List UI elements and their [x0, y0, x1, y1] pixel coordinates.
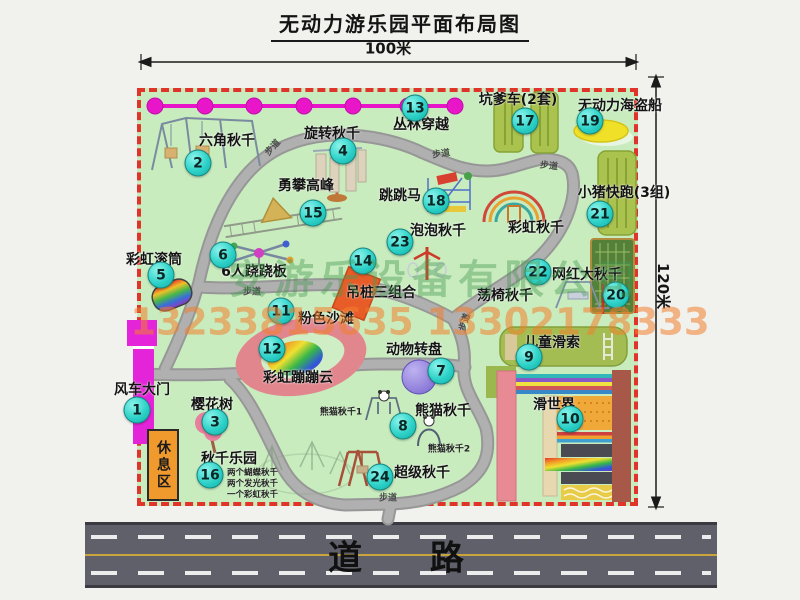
attraction-18-label: 跳跳马	[379, 185, 421, 205]
rainbow-swing-label: 彩虹秋千	[508, 217, 564, 237]
attraction-15-label: 勇攀高峰	[278, 175, 334, 195]
attraction-23-label: 泡泡秋千	[410, 220, 466, 240]
attraction-16-bubble: 16	[197, 462, 224, 489]
attraction-15-bubble: 15	[300, 200, 327, 227]
attraction-2-bubble: 2	[185, 150, 212, 177]
swing-note-2: 两个发光秋千	[227, 479, 278, 489]
attraction-2-label: 六角秋千	[199, 130, 255, 150]
attraction-10-bubble: 10	[557, 406, 584, 433]
width-dimension-label: 100米	[365, 38, 411, 59]
playground-map-page: 无动力游乐园平面布局图 100米 120米	[0, 0, 800, 600]
attraction-1-label: 风车大门	[114, 379, 170, 399]
attraction-3-bubble: 3	[202, 409, 229, 436]
attraction-8-label: 熊猫秋千	[415, 400, 471, 420]
attraction-7-bubble: 7	[428, 358, 455, 385]
attraction-8-bubble: 8	[390, 413, 417, 440]
swing-note-3: 一个彩虹秋千	[227, 490, 278, 500]
attraction-9-bubble: 9	[516, 344, 543, 371]
attraction-17-label: 坑爹车(2套)	[479, 89, 558, 109]
attraction-5-bubble: 5	[148, 262, 175, 289]
attraction-21-label: 小猪快跑(3组)	[578, 182, 671, 202]
attraction-1-bubble: 1	[124, 397, 151, 424]
street-label: 道 路	[328, 531, 474, 580]
attraction-12-label: 彩虹蹦蹦云	[263, 367, 333, 387]
swing-note-1: 两个蝴蝶秋千	[227, 468, 278, 478]
attraction-24-label: 超级秋千	[394, 462, 450, 482]
rest-area-box: 休息区	[147, 429, 179, 501]
attraction-24-bubble: 24	[367, 464, 394, 491]
attraction-4-bubble: 4	[330, 138, 357, 165]
watermark-phone: 13233815635 13302178333	[130, 301, 709, 344]
attraction-18-bubble: 18	[423, 188, 450, 215]
attraction-21-bubble: 21	[587, 201, 614, 228]
path-label: 步道	[539, 158, 558, 173]
attraction-19-bubble: 19	[577, 108, 604, 135]
watermark-company: 安游乐设备有限公司	[228, 247, 642, 305]
panda-swing-1-note: 熊猫秋千1	[320, 405, 362, 418]
street-strip: 道 路	[85, 522, 717, 588]
path-label: 步道	[431, 145, 451, 160]
attraction-13-bubble: 13	[402, 95, 429, 122]
panda-swing-2-note: 熊猫秋千2	[428, 442, 470, 455]
path-label: 步道	[379, 491, 397, 504]
attraction-17-bubble: 17	[512, 108, 539, 135]
